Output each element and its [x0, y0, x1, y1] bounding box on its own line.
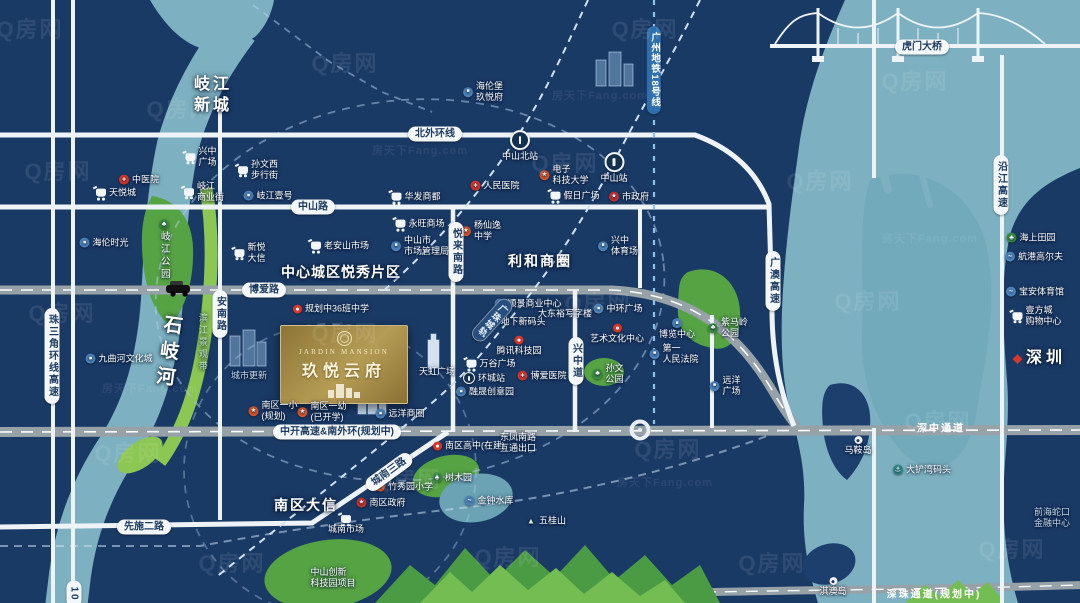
biz-icon [463, 87, 473, 97]
poi-label: 中山创新科技园项目 [310, 567, 355, 589]
water-icon [464, 496, 474, 506]
road-label-yanjiang-expwy: 沿江高速 [994, 155, 1009, 215]
watermark: Q房网 [28, 296, 95, 328]
poi-expo-center[interactable]: 博览中心 [659, 318, 695, 340]
poi-label: 五桂山 [539, 516, 566, 527]
poi-tcm-hospital[interactable]: 中医院 [119, 175, 159, 186]
shenzhen-marker-diamond-icon [1013, 354, 1023, 364]
poi-huancheng-station[interactable]: 环城站 [463, 372, 505, 384]
poi-zhongshan-station[interactable]: 中山站 [600, 152, 627, 184]
poi-label: 远洋商圈 [388, 409, 424, 420]
biz-icon [375, 409, 385, 419]
poi-qijiang-no1[interactable]: 岐江壹号 [243, 191, 292, 202]
poi-innovation-tech-park[interactable]: 中山创新科技园项目 [310, 567, 355, 589]
biz-icon [709, 381, 719, 391]
poi-label: 壹方城购物中心 [1025, 305, 1061, 327]
water-icon [1006, 287, 1016, 297]
biz-icon [672, 318, 682, 328]
park-icon [159, 219, 169, 229]
area-label-shenzhen: 深圳 [1014, 349, 1066, 370]
poi-label: 大东裕写字楼 [538, 309, 592, 320]
road-label-boai-rd: 博爱路 [242, 283, 286, 298]
watermark: Q房网 [24, 154, 91, 186]
poi-label: 南区高中(在建) [445, 441, 505, 452]
poi-label: 人民医院 [483, 181, 519, 192]
poi-label: 岐江公园 [158, 231, 169, 281]
poi-renmin-hospital[interactable]: 人民医院 [470, 181, 519, 192]
biz-icon [243, 191, 253, 201]
poi-label: 中环广场 [606, 304, 642, 315]
poi-label: 宝安体育馆 [1019, 287, 1064, 298]
road-label-g105-rd: 10 [67, 580, 82, 603]
water-icon [1005, 252, 1015, 262]
poi-zimaling-park[interactable]: 紫马岭公园 [708, 317, 748, 339]
park-icon [1006, 233, 1016, 243]
poi-tencent-tech-park[interactable]: 腾讯科技园 [496, 336, 541, 357]
watermark: Q房网 [978, 532, 1045, 564]
poi-laoanshan-market[interactable]: 老安山市场 [311, 241, 369, 252]
poi-label: 天虹广场 [419, 367, 455, 378]
anchor-icon [893, 465, 903, 475]
poi-label: 腾讯科技园 [496, 346, 541, 357]
poi-jinzhong-reservoir[interactable]: 金钟水库 [464, 496, 513, 507]
poi-label: 艺术文化中心 [590, 334, 644, 345]
watermark: Q房网 [634, 432, 701, 464]
cart-icon [550, 192, 560, 200]
poi-label: 假日广场 [563, 191, 599, 202]
poi-label: 海伦堡玖悦府 [476, 81, 503, 103]
school-icon [539, 170, 549, 180]
poi-label: 华发商都 [404, 192, 440, 203]
poi-boai-hospital[interactable]: 博爱医院 [517, 371, 566, 382]
pin-icon [433, 441, 442, 450]
poi-hangang-golf[interactable]: 航港高尔夫 [1005, 252, 1063, 263]
poi-helenbergh-jiuyuefu[interactable]: 海伦堡玖悦府 [463, 81, 503, 103]
poi-label: 中山站 [600, 173, 627, 184]
watermark-secondary: 房天下Fang.com [882, 230, 978, 246]
pin-icon [293, 304, 302, 313]
poi-dongfeng-exit[interactable]: 东凤南路互通出口 [500, 432, 536, 454]
pin-icon [514, 336, 523, 345]
poi-label: 永旺商场 [408, 219, 444, 230]
road-label-shenzhu-corridor: 深珠通道(规划中) [880, 588, 989, 603]
school-icon [297, 407, 307, 417]
biz-icon [79, 238, 89, 248]
poi-label: 兴中广场 [198, 146, 216, 168]
poi-label: 前海蛇口金融中心 [1034, 507, 1070, 529]
poi-nanqu-high-school[interactable]: 南区高中(在建) [433, 441, 505, 452]
poi-haishang-tianyuan[interactable]: 海上田园 [1006, 233, 1055, 244]
cart-icon [391, 193, 401, 201]
biz-icon [593, 304, 603, 314]
poi-label: 岐江壹号 [256, 191, 292, 202]
gov-icon [609, 192, 619, 202]
area-label-shiqi-river: 石岐河 [148, 313, 184, 401]
biz-icon [456, 387, 466, 397]
biz-icon [649, 349, 659, 359]
area-label-lihe-business-circle: 利和商圈 [508, 252, 572, 270]
poi-label: 树木园 [445, 473, 472, 484]
road-label-beiwai-ring-rd: 北外环线 [408, 127, 462, 142]
watermark: Q房网 [786, 164, 853, 196]
cart-icon [395, 220, 405, 228]
school-icon [248, 406, 258, 416]
poi-xingzhong-plaza[interactable]: 兴中广场 [185, 146, 216, 168]
poi-label: 孙文公园 [605, 363, 623, 385]
poi-label: 海上田园 [1019, 233, 1055, 244]
watermark: Q房网 [311, 46, 378, 78]
poi-label: 环城站 [478, 373, 505, 384]
area-label-binjiang-landscape-belt: 滨江景观带 [196, 313, 208, 377]
road-label-xingzhong-ave: 兴中道 [569, 337, 584, 385]
poi-yifangcheng-mall[interactable]: 壹方城购物中心 [1012, 305, 1061, 327]
poi-baoan-stadium[interactable]: 宝安体育馆 [1006, 287, 1064, 298]
rail-icon [604, 152, 624, 172]
poi-uestc-zhongshan[interactable]: 电子科技大学 [539, 164, 588, 186]
park-icon [432, 473, 442, 483]
poi-label: 远洋广场 [722, 375, 740, 397]
poi-dadongyu-office[interactable]: 大东裕写字楼 [538, 309, 592, 320]
poi-label: 博爱医院 [530, 371, 566, 382]
mtn-icon [526, 516, 536, 526]
poi-label: 天悦城 [109, 188, 136, 199]
park-icon [592, 369, 602, 379]
poi-label: 第一人民法院 [662, 343, 698, 365]
road-label-xianshi-2nd-rd: 先施二路 [117, 520, 171, 535]
poi-xinyue-daxin[interactable]: 新悦大信 [234, 242, 265, 264]
poi-qijiang-park[interactable]: 岐江公园 [158, 219, 169, 281]
poi-city-government[interactable]: 市政府 [609, 192, 649, 203]
road-label-zhusanjiao-ring-expwy: 珠三角环线高速 [45, 308, 60, 404]
poi-label: 中医院 [132, 175, 159, 186]
poi-label: 规划中36班中学 [305, 304, 369, 315]
island-icon [829, 577, 837, 585]
poi-zhongshan-north-station[interactable]: 中山北站 [502, 130, 538, 162]
location-map: JARDIN MANSION 玖悦云府 兴中广场孙文西步行街岐江商业街岐江壹号中… [0, 0, 1080, 603]
watermark: Q房网 [474, 540, 541, 572]
gov-icon [356, 498, 366, 508]
poi-urban-renewal[interactable]: 城市更新 [231, 371, 267, 382]
poi-first-peoples-court[interactable]: 第一人民法院 [649, 343, 698, 365]
watermark: Q房网 [94, 436, 161, 468]
poi-label: 顺景商业中心 [507, 299, 561, 310]
poi-nanqu-first-primary[interactable]: 南区一小(规划) [248, 400, 297, 422]
poi-label: 孙文西步行街 [251, 159, 278, 181]
biz-icon [391, 241, 401, 251]
poi-label: 航港高尔夫 [1018, 252, 1063, 263]
poi-qiao-island[interactable]: 淇澳岛 [819, 577, 846, 597]
park-icon [708, 323, 718, 333]
poi-qijiang-biz-street[interactable]: 岐江商业街 [184, 181, 224, 203]
poi-nanqu-first-kindergarten[interactable]: 南区一幼(已开学) [297, 401, 346, 423]
poi-label: 新悦大信 [247, 242, 265, 264]
poi-label: 兴中体育场 [611, 235, 638, 257]
cart-icon [341, 515, 351, 523]
biz-icon [85, 354, 95, 364]
poi-jiuquhe-culture-city[interactable]: 九曲河文化城 [85, 354, 152, 365]
poi-qianhai-finance-center[interactable]: 前海蛇口金融中心 [1034, 507, 1070, 529]
rail-icon [510, 130, 530, 150]
road-label-annan-rd: 安南路 [213, 290, 228, 338]
poi-art-culture-center[interactable]: 艺术文化中心 [590, 324, 644, 345]
rail-icon [463, 372, 475, 384]
area-label-qijiang-newtown: 岐江新城 [194, 75, 232, 117]
poi-label: 城南市场 [328, 524, 364, 535]
poi-rongsheng-creative-park[interactable]: 融晟创意园 [456, 387, 514, 398]
poi-label: 南区一幼(已开学) [310, 401, 346, 423]
road-label-humen-bridge: 虎门大桥 [895, 40, 949, 55]
road-label-gz-metro-line18: 广州地铁18号线 [647, 26, 661, 114]
cart-icon [184, 188, 194, 196]
poi-label: 老安山市场 [324, 241, 369, 252]
poi-label: 金钟水库 [477, 496, 513, 507]
poi-dachanwan-wharf[interactable]: 大铲湾码头 [893, 465, 951, 476]
poi-label: 万谷广场 [479, 359, 515, 370]
area-label-center-city-yuexiu: 中心城区悦秀片区 [281, 263, 401, 281]
poi-sunwen-park[interactable]: 孙文公园 [592, 363, 623, 385]
cart-icon [185, 153, 195, 161]
watermark: Q房网 [611, 12, 678, 44]
watermark: Q房网 [311, 316, 378, 348]
poi-label: 南区一小(规划) [261, 400, 297, 422]
poi-zhonghuan-plaza[interactable]: 中环广场 [593, 304, 642, 315]
poi-label: 东凤南路互通出口 [500, 432, 536, 454]
watermark: Q房网 [198, 546, 265, 578]
poi-yuanyang-biz-circle[interactable]: 远洋商圈 [375, 409, 424, 420]
poi-label: 岐江商业街 [197, 181, 224, 203]
med-icon [119, 175, 129, 185]
poi-label: 杨仙逸中学 [474, 220, 501, 242]
poi-holiday-plaza[interactable]: 假日广场 [550, 191, 599, 202]
watermark: Q房网 [738, 546, 805, 578]
poi-yangxianyi-middle-school[interactable]: 杨仙逸中学 [461, 220, 501, 242]
poi-planned-36-class-school[interactable]: 规划中36班中学 [293, 304, 369, 315]
poi-label: 中山北站 [502, 151, 538, 162]
pin-icon [612, 324, 621, 333]
poi-label: 融晟创意园 [469, 387, 514, 398]
watermark: Q房网 [834, 284, 901, 316]
poi-shumuyuan-arboretum[interactable]: 树木园 [432, 473, 472, 484]
poi-label: 博览中心 [659, 329, 695, 340]
road-label-yuelai-south-rd: 悦来南路 [449, 222, 464, 282]
poi-market-admin-bureau[interactable]: 中山市市场管理局 [391, 235, 449, 257]
watermark-secondary: 房天下Fang.com [552, 87, 648, 103]
watermark: Q房网 [0, 12, 64, 44]
poi-helen-time[interactable]: 海伦时光 [79, 238, 128, 249]
road-label-zhongshan-rd: 中山路 [291, 200, 335, 215]
poi-maan-island[interactable]: 马鞍岛 [844, 436, 871, 456]
poi-yuanyang-plaza[interactable]: 远洋广场 [709, 375, 740, 397]
med-icon [470, 181, 480, 191]
road-label-zhongkai-expwy-south-ring: 中开高速&南外环(规划中) [273, 425, 401, 440]
poi-huafa-shangdu[interactable]: 华发商都 [391, 192, 440, 203]
poi-label: 紫马岭公园 [721, 317, 748, 339]
poi-label: 大铲湾码头 [906, 465, 951, 476]
poi-aeon-mall[interactable]: 永旺商场 [395, 219, 444, 230]
watermark-secondary: 房天下Fang.com [617, 474, 713, 490]
poi-tianhong-plaza[interactable]: 天虹广场 [419, 367, 455, 378]
poi-label: 市政府 [622, 192, 649, 203]
poi-label: 马鞍岛 [844, 445, 871, 456]
poi-label: 淇澳岛 [819, 586, 846, 597]
poi-wugui-mountain[interactable]: 五桂山 [526, 516, 566, 527]
island-icon [854, 436, 862, 444]
cart-icon [96, 189, 106, 197]
poi-label: 海伦时光 [92, 238, 128, 249]
poi-label: 中山市市场管理局 [404, 235, 449, 257]
poi-label: 电子科技大学 [552, 164, 588, 186]
cart-icon [1012, 312, 1022, 320]
watermark: Q房网 [881, 64, 948, 96]
poi-sunwenxi-walking-street[interactable]: 孙文西步行街 [238, 159, 278, 181]
poi-label: 竹秀园小学 [388, 482, 433, 493]
cart-icon [238, 166, 248, 174]
area-label-nanqu-daxin: 南区大信 [274, 496, 338, 514]
road-label-guangao-expwy: 广澳高速 [766, 251, 781, 311]
poi-chengnan-market[interactable]: 城南市场 [328, 515, 364, 535]
cart-icon [466, 360, 476, 368]
poi-label: 南区政府 [369, 498, 405, 509]
cart-icon [311, 242, 321, 250]
poi-tianyue-city[interactable]: 天悦城 [96, 188, 136, 199]
watermark-secondary: 房天下Fang.com [372, 142, 468, 158]
poi-nanqu-government[interactable]: 南区政府 [356, 498, 405, 509]
poi-label: 九曲河文化城 [98, 354, 152, 365]
poi-xingzhong-stadium[interactable]: 兴中体育场 [598, 235, 638, 257]
poi-wangu-plaza[interactable]: 万谷广场 [466, 359, 515, 370]
biz-icon [598, 241, 608, 251]
poi-label: 城市更新 [231, 371, 267, 382]
cart-icon [234, 249, 244, 257]
med-icon [517, 371, 527, 381]
road-label-shenzhong-corridor: 深中通道 [910, 422, 972, 437]
map-overlay: 兴中广场孙文西步行街岐江商业街岐江壹号中医院天悦城海伦时光岐江公园九曲河文化城华… [0, 0, 1080, 603]
